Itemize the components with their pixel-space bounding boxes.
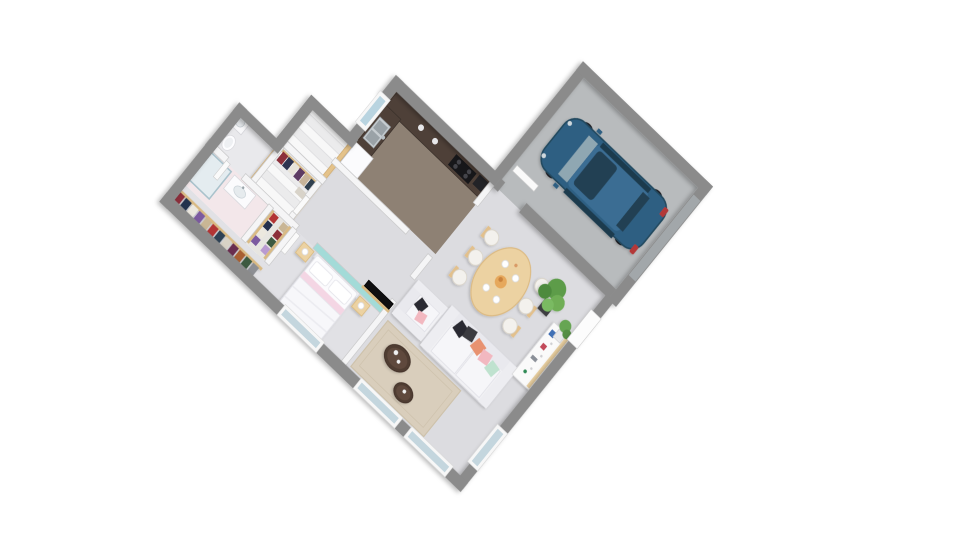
floorplan-render: [0, 0, 960, 540]
floorplan-svg: [0, 0, 960, 540]
